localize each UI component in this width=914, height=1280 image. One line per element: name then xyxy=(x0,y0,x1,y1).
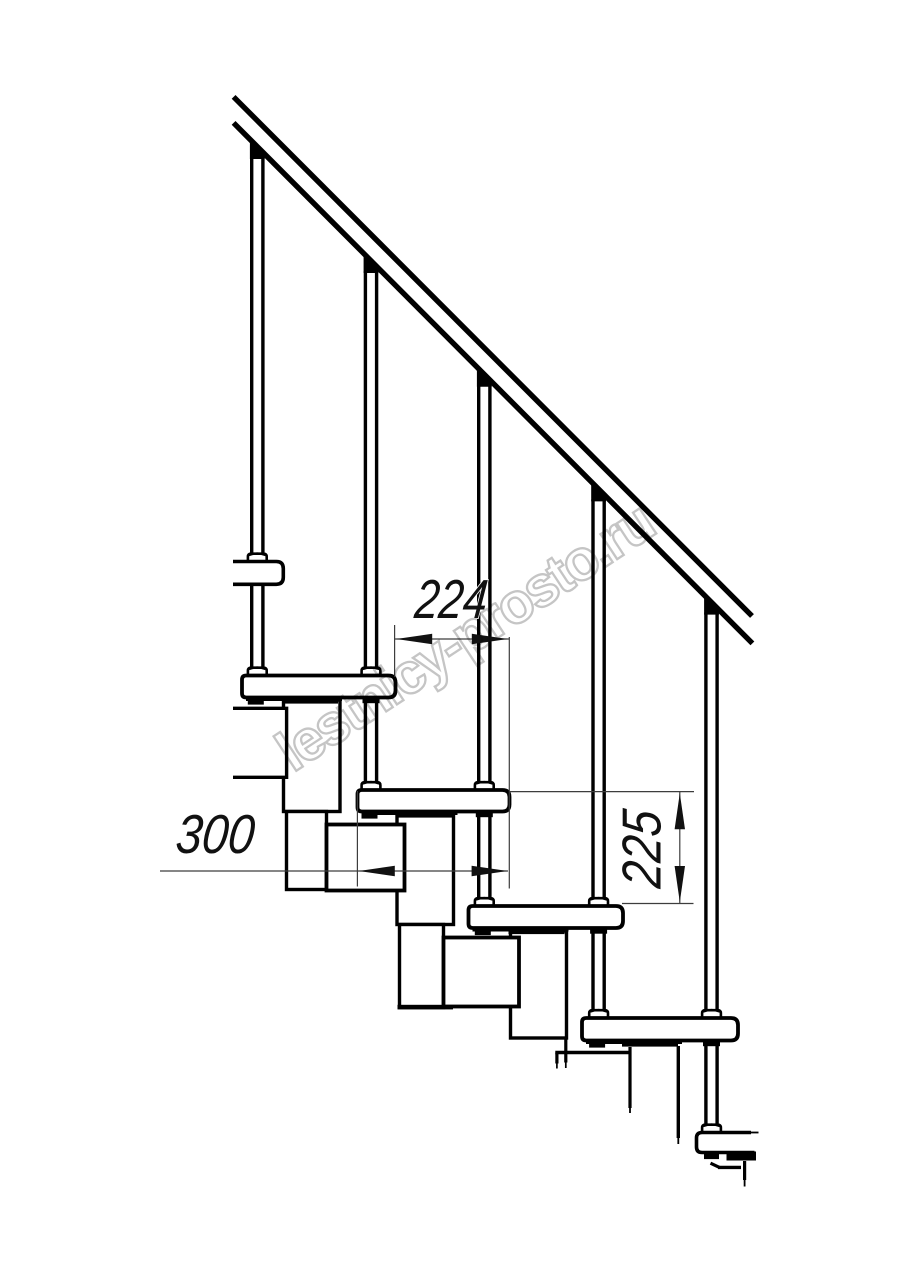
svg-text:300: 300 xyxy=(173,803,258,865)
svg-text:225: 225 xyxy=(611,806,673,891)
